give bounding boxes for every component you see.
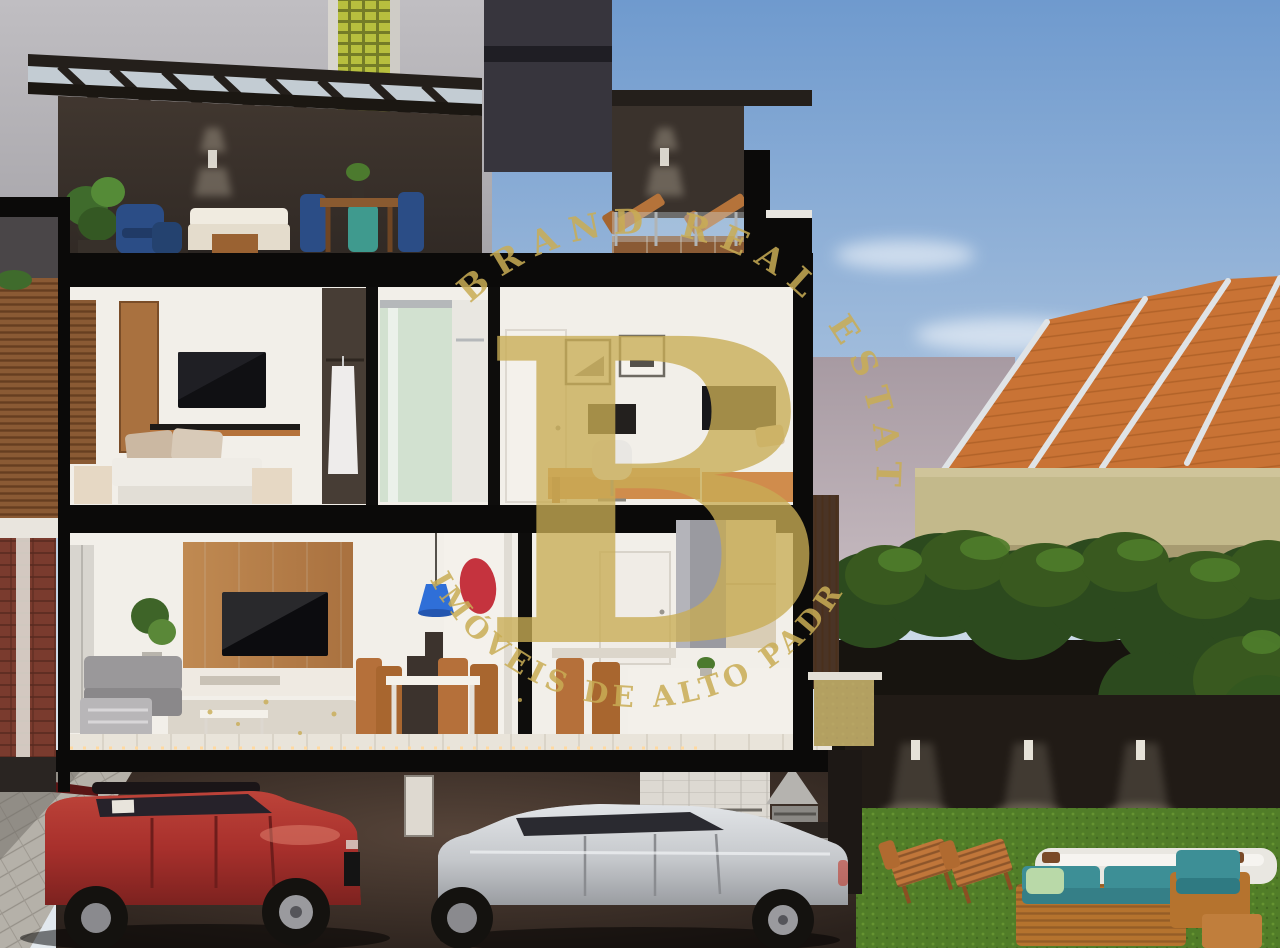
wall-bedroom-bath [366,287,378,505]
red-suv-grille [344,852,360,886]
stair-tower [484,0,612,172]
wardrobe [322,288,368,504]
real-estate-render: B BRAND REAL ESTATE IMÓVEIS DE ALTO PADR… [0,0,1280,948]
bathroom [380,300,488,502]
garden-side-table [1202,914,1262,948]
nightstand-right [252,468,292,504]
terrace-sofa [188,208,290,255]
facade-white-band [0,518,58,538]
bottom-slab [28,750,838,772]
garage-back-door [405,776,433,836]
roof-terrace [58,96,482,255]
left-cut-edge [58,197,70,792]
roof-gutter [915,468,1280,477]
nightstand-left [74,466,112,504]
